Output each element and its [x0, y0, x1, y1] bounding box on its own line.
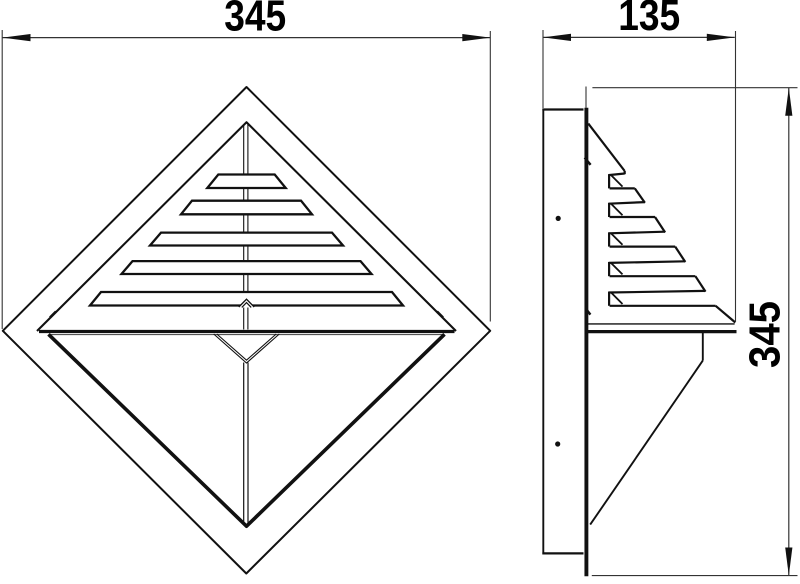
svg-text:345: 345 — [740, 301, 789, 368]
svg-text:135: 135 — [618, 0, 680, 40]
svg-text:345: 345 — [224, 0, 286, 41]
